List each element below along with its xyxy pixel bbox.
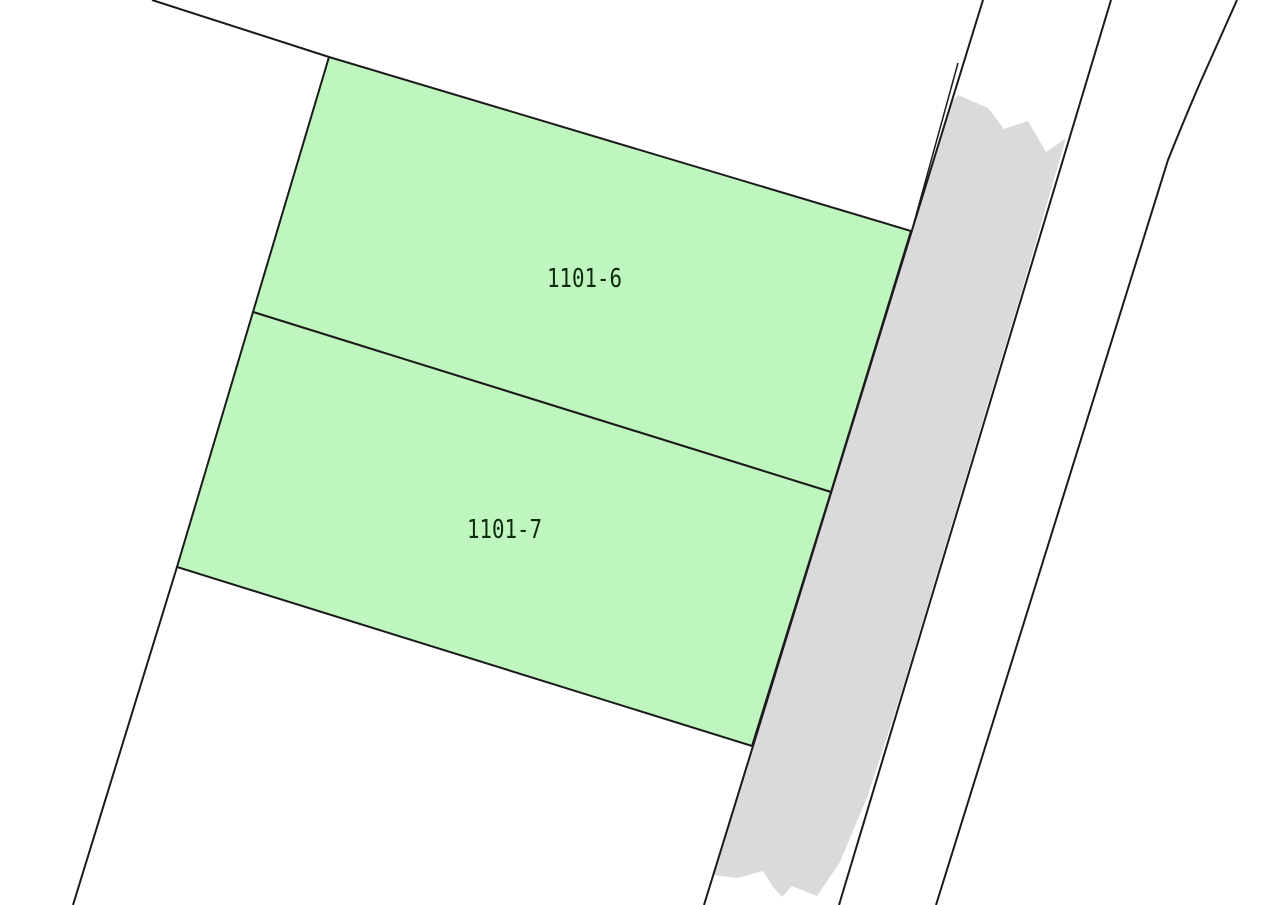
cadastral-map-viewport: 1101-6 1101-7	[0, 0, 1280, 905]
map-canvas: 1101-6 1101-7	[0, 0, 1280, 905]
parcel-label-1101-7: 1101-7	[467, 515, 542, 545]
parcel-label-1101-6: 1101-6	[547, 264, 622, 294]
